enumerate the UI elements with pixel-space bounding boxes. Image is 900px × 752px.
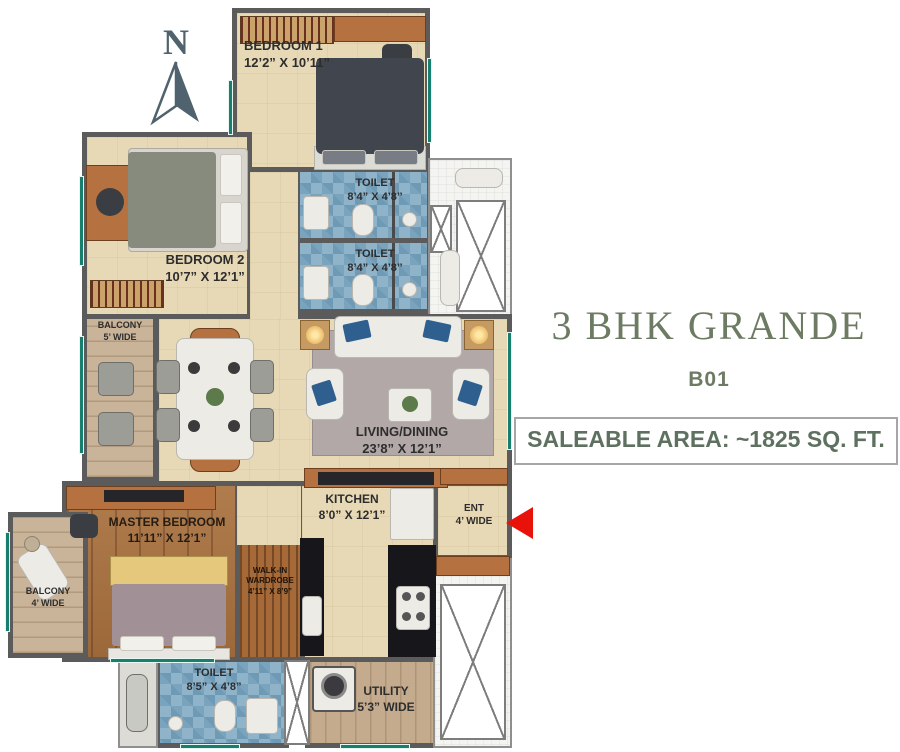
window — [340, 744, 410, 749]
label-bedroom2: BEDROOM 2 10’7” X 12’1” — [135, 252, 275, 286]
lamp-icon — [464, 320, 494, 350]
window — [110, 658, 215, 663]
room-name: TOILET — [164, 666, 264, 680]
plate-icon — [228, 420, 240, 432]
lobby-geyser — [440, 250, 460, 306]
room-dims: 11’11” X 12’1” — [92, 531, 242, 547]
plate-icon — [188, 362, 200, 374]
room-name: BALCONY — [14, 586, 82, 598]
plan-title: 3 BHK GRANDE — [520, 302, 898, 349]
bed-headboard-icon — [110, 556, 228, 586]
room-name: UTILITY — [330, 684, 442, 700]
shower-icon — [168, 716, 183, 731]
shower-icon — [402, 282, 417, 297]
room-dims: 23’8” X 12’1” — [322, 441, 482, 458]
label-toilet3: TOILET 8’5” X 4’8” — [164, 666, 264, 695]
tv-icon — [104, 490, 184, 502]
window — [507, 332, 512, 450]
room-name: TOILET — [325, 176, 425, 190]
room-dims: 4’ WIDE — [440, 515, 508, 528]
wc-icon — [352, 204, 374, 236]
bed-pillow-icon — [374, 150, 418, 165]
room-name: MASTER BEDROOM — [92, 515, 242, 531]
dining-chair-icon — [156, 408, 180, 442]
room-dims: 5’3” WIDE — [330, 700, 442, 716]
saleable-area-box: SALEABLE AREA: ~1825 SQ. FT. — [514, 417, 898, 465]
lobby-bench — [455, 168, 503, 188]
label-entrance: ENT 4’ WIDE — [440, 502, 508, 528]
sink-icon — [302, 596, 322, 636]
room-dims: 12’2” X 10’11” — [244, 55, 364, 72]
window — [427, 58, 432, 143]
wc-icon — [214, 700, 236, 732]
window — [79, 336, 84, 454]
hallway-floor — [250, 172, 298, 319]
label-master: MASTER BEDROOM 11’11” X 12’1” — [92, 515, 242, 546]
shower-icon — [402, 212, 417, 227]
room-dims: 4’ WIDE — [14, 598, 82, 610]
room-name: BEDROOM 2 — [135, 252, 275, 269]
label-living: LIVING/DINING 23’8” X 12’1” — [322, 424, 482, 458]
room-walkin-wardrobe — [235, 540, 305, 662]
window — [79, 176, 84, 266]
duct-shaft — [284, 660, 310, 745]
plate-icon — [228, 362, 240, 374]
dining-chair-icon — [250, 360, 274, 394]
door-header — [436, 556, 510, 576]
ac-unit-icon — [126, 674, 148, 732]
door-header — [440, 468, 508, 485]
dining-chair-icon — [156, 360, 180, 394]
washbasin-icon — [246, 698, 278, 734]
room-name: ENT — [440, 502, 508, 515]
room-name: BEDROOM 1 — [244, 38, 364, 55]
room-name: TOILET — [325, 247, 425, 261]
north-label: N — [138, 24, 214, 60]
burner-icon — [402, 612, 411, 621]
balcony-seat-icon — [98, 412, 134, 446]
burner-icon — [402, 592, 411, 601]
room-dims: 5’ WIDE — [88, 332, 152, 344]
window — [228, 80, 233, 135]
passage-floor — [237, 486, 301, 545]
room-name: KITCHEN — [300, 492, 404, 508]
room-name: BALCONY — [88, 320, 152, 332]
label-utility: UTILITY 5’3” WIDE — [330, 684, 442, 715]
plant-icon — [402, 396, 418, 412]
room-dims: 8’4” X 4’8’’ — [325, 261, 425, 275]
room-dims: 10’7” X 12’1” — [135, 269, 275, 286]
label-kitchen: KITCHEN 8’0” X 12’1” — [300, 492, 404, 523]
plate-icon — [188, 420, 200, 432]
room-name: LIVING/DINING — [322, 424, 482, 441]
bed-pillow-icon — [220, 154, 242, 196]
label-toilet2: TOILET 8’4” X 4’8’’ — [325, 247, 425, 276]
label-bedroom1: BEDROOM 1 12’2” X 10’11” — [244, 38, 364, 72]
bed-blanket-icon — [316, 58, 424, 154]
bed-pillow-icon — [322, 150, 366, 165]
burner-icon — [416, 592, 425, 601]
room-name: WALK-IN WARDROBE — [239, 566, 301, 587]
entry-arrow-icon — [506, 507, 533, 539]
floorplan-page: BEDROOM 1 12’2” X 10’11” TOILET 8’4” X 4… — [0, 0, 900, 752]
label-balcony4: BALCONY 4’ WIDE — [14, 586, 82, 609]
burner-icon — [416, 612, 425, 621]
label-toilet1: TOILET 8’4” X 4’8’’ — [325, 176, 425, 205]
saleable-area-text: SALEABLE AREA: ~1825 SQ. FT. — [516, 419, 896, 460]
lift-shaft-bottom — [440, 584, 506, 740]
window — [180, 744, 240, 749]
floor-plan: BEDROOM 1 12’2” X 10’11” TOILET 8’4” X 4… — [0, 0, 520, 752]
lamp-icon — [300, 320, 330, 350]
bed-pillow-icon — [172, 636, 216, 651]
room-dims: 8’4” X 4’8’’ — [325, 190, 425, 204]
unit-number: B01 — [520, 368, 898, 392]
plant-icon — [206, 388, 224, 406]
room-dims: 4’11” X 8’9” — [239, 587, 301, 597]
balcony-seat-icon — [98, 362, 134, 396]
tv-icon — [318, 472, 434, 485]
wc-icon — [352, 274, 374, 306]
window — [5, 532, 10, 632]
bed-pillow-icon — [220, 202, 242, 244]
stove-icon — [396, 586, 430, 630]
label-wardrobe: WALK-IN WARDROBE 4’11” X 8’9” — [239, 566, 301, 597]
north-compass: N — [138, 24, 214, 131]
north-arrow-icon — [147, 60, 205, 126]
lift-shaft-small — [430, 205, 452, 253]
label-balcony5: BALCONY 5’ WIDE — [88, 320, 152, 343]
desk-chair-icon — [96, 188, 124, 216]
dining-chair-icon — [250, 408, 274, 442]
bed-blanket-icon — [128, 152, 216, 248]
lift-shaft-large — [456, 200, 506, 312]
bed-pillow-icon — [120, 636, 164, 651]
room-dims: 8’5” X 4’8” — [164, 680, 264, 694]
room-dims: 8’0” X 12’1” — [300, 508, 404, 524]
ball-icon — [24, 536, 40, 552]
